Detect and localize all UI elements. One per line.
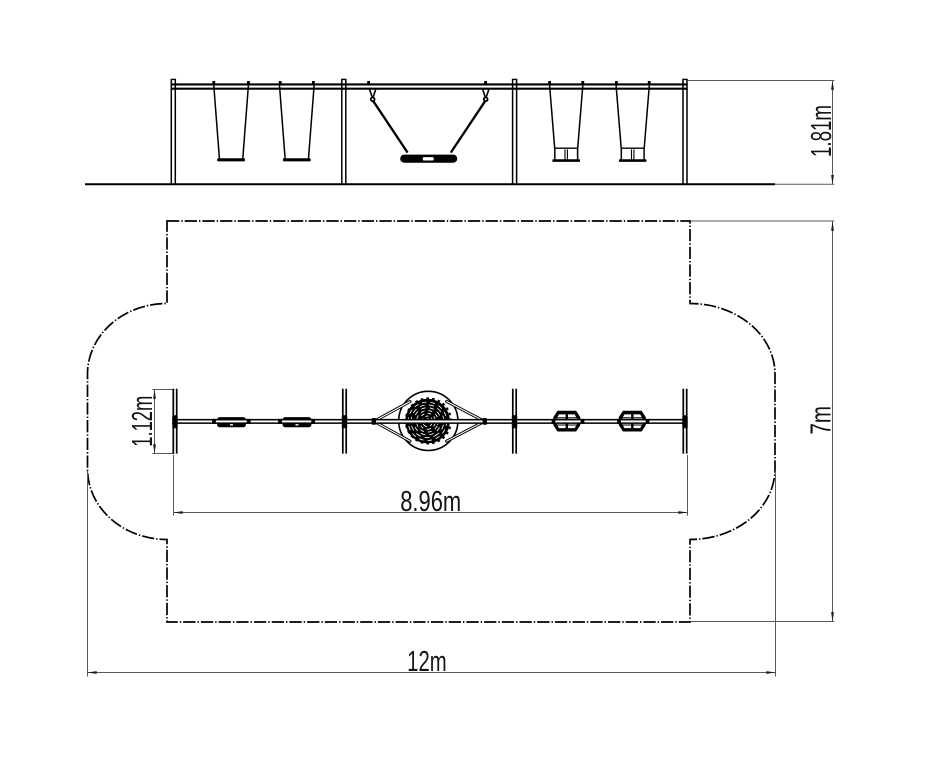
svg-text:12m: 12m: [407, 647, 446, 678]
svg-text:8.96m: 8.96m: [400, 486, 461, 517]
svg-text:7m: 7m: [806, 406, 837, 435]
svg-text:1.81m: 1.81m: [806, 105, 838, 157]
svg-text:1.12m: 1.12m: [127, 396, 159, 447]
